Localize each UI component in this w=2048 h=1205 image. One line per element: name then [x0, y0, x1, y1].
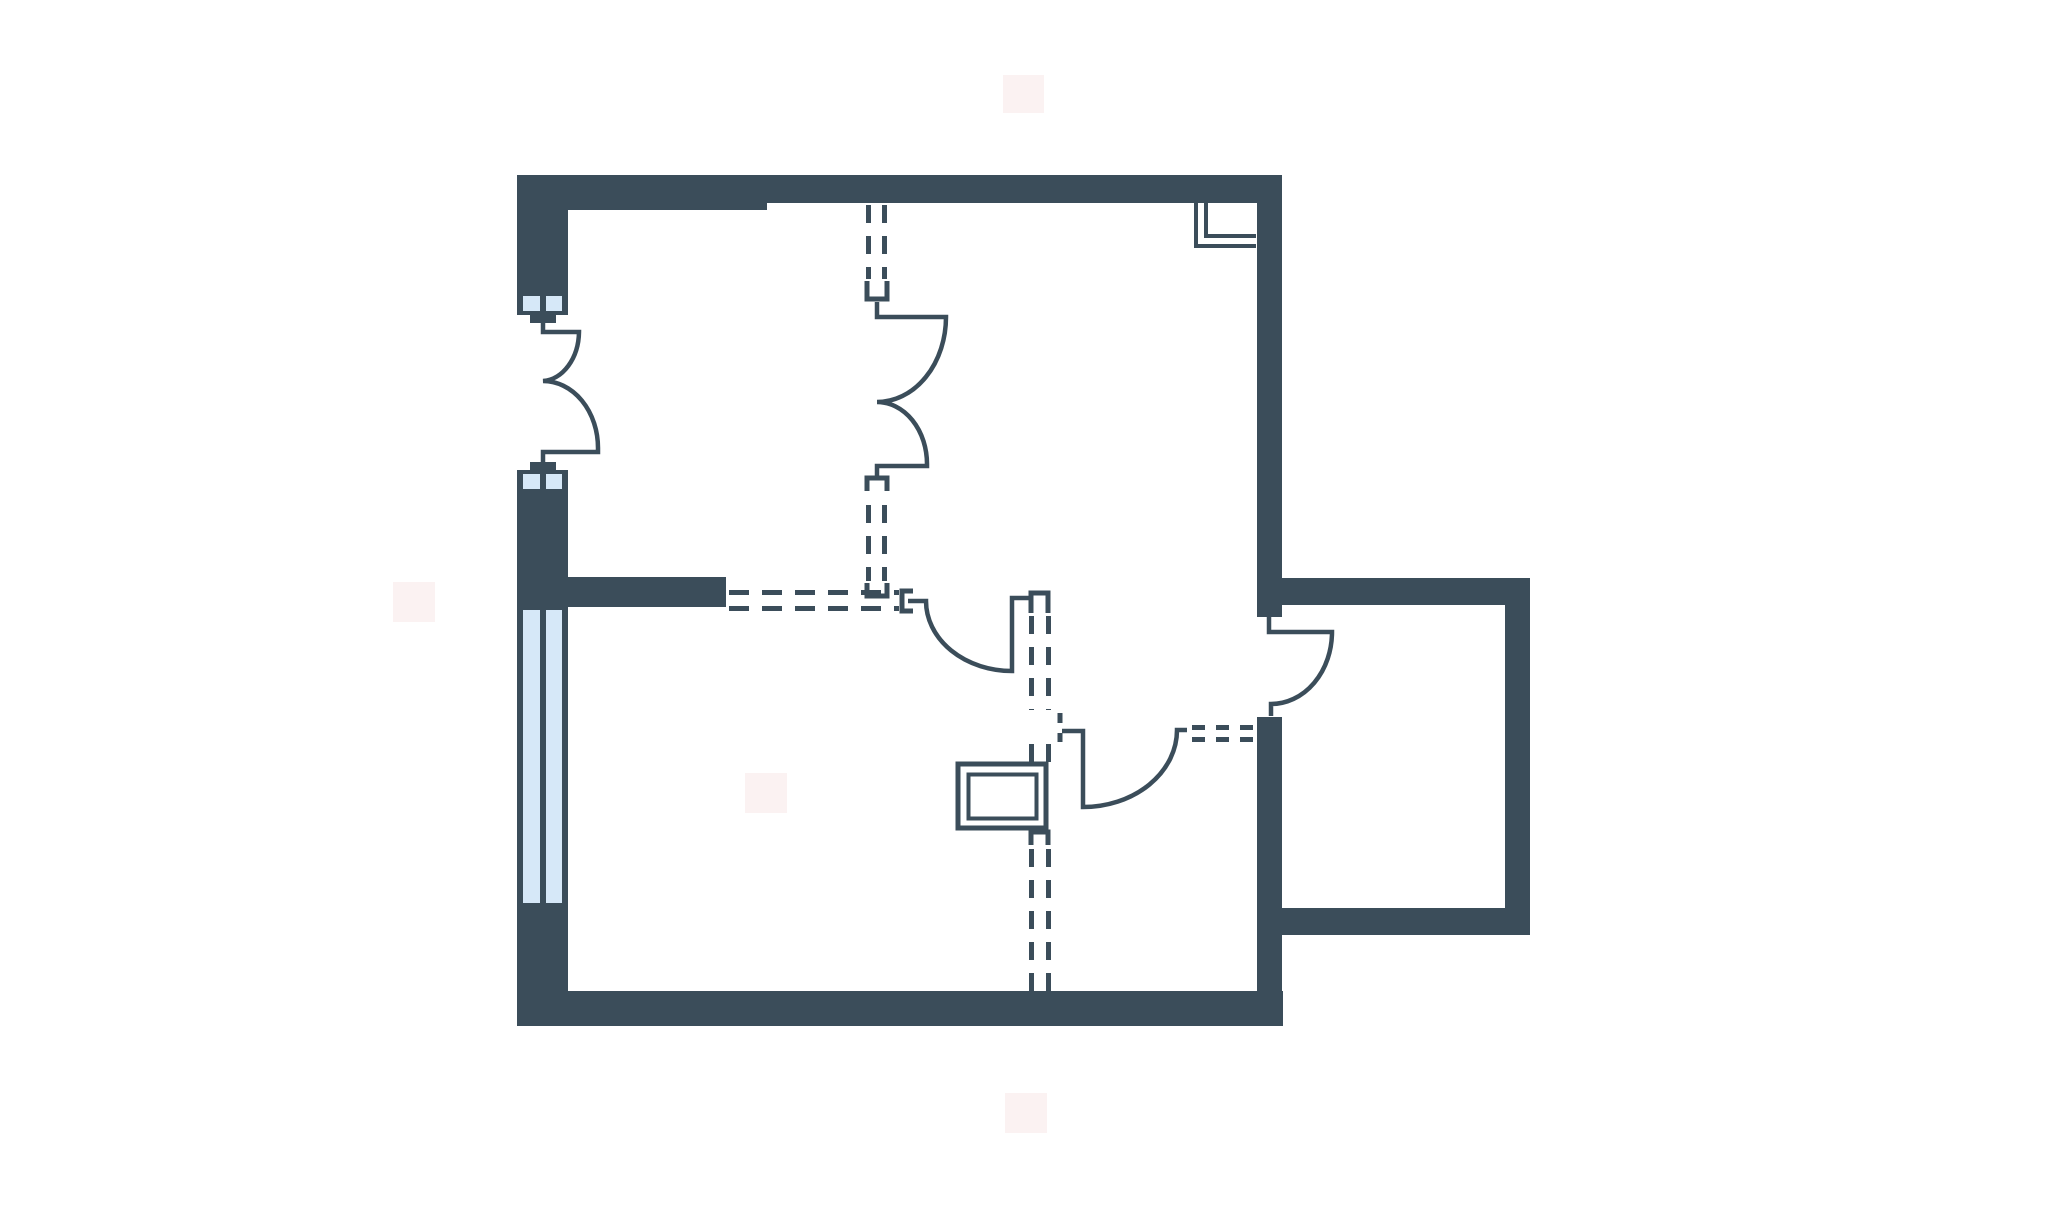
right-wall-upper: [1257, 175, 1282, 617]
entry-door-tab-top: [530, 313, 556, 323]
watermark-center: [745, 773, 787, 813]
entry-sidelight-top-pane-2: [546, 296, 562, 311]
entry-sidelight-top-pane-1: [523, 296, 540, 311]
top-wall-right-segment: [767, 175, 1282, 203]
watermark-left: [393, 582, 435, 622]
floor-plan-canvas: [0, 0, 2048, 1205]
extension-bottom-wall: [1282, 908, 1530, 935]
bottom-wall: [517, 991, 1283, 1026]
living-room-window-pane-2: [546, 610, 562, 903]
left-wall-upper-pier: [517, 175, 568, 292]
watermark-bottom: [1005, 1093, 1047, 1133]
interior-partition-wall: [568, 577, 726, 607]
entry-sidelight-bottom-pane-1: [523, 474, 540, 489]
right-wall-lower: [1257, 717, 1282, 1026]
entry-door-tab-bottom: [530, 462, 556, 472]
left-wall-middle-pier: [517, 492, 568, 610]
extension-right-wall: [1505, 578, 1530, 935]
entry-sidelight-bottom-pane-2: [546, 474, 562, 489]
living-room-window-pane-1: [523, 610, 540, 903]
floor-plan-drawing: [0, 0, 2048, 1205]
watermark-top: [1003, 75, 1044, 113]
extension-top-wall: [1282, 578, 1530, 605]
